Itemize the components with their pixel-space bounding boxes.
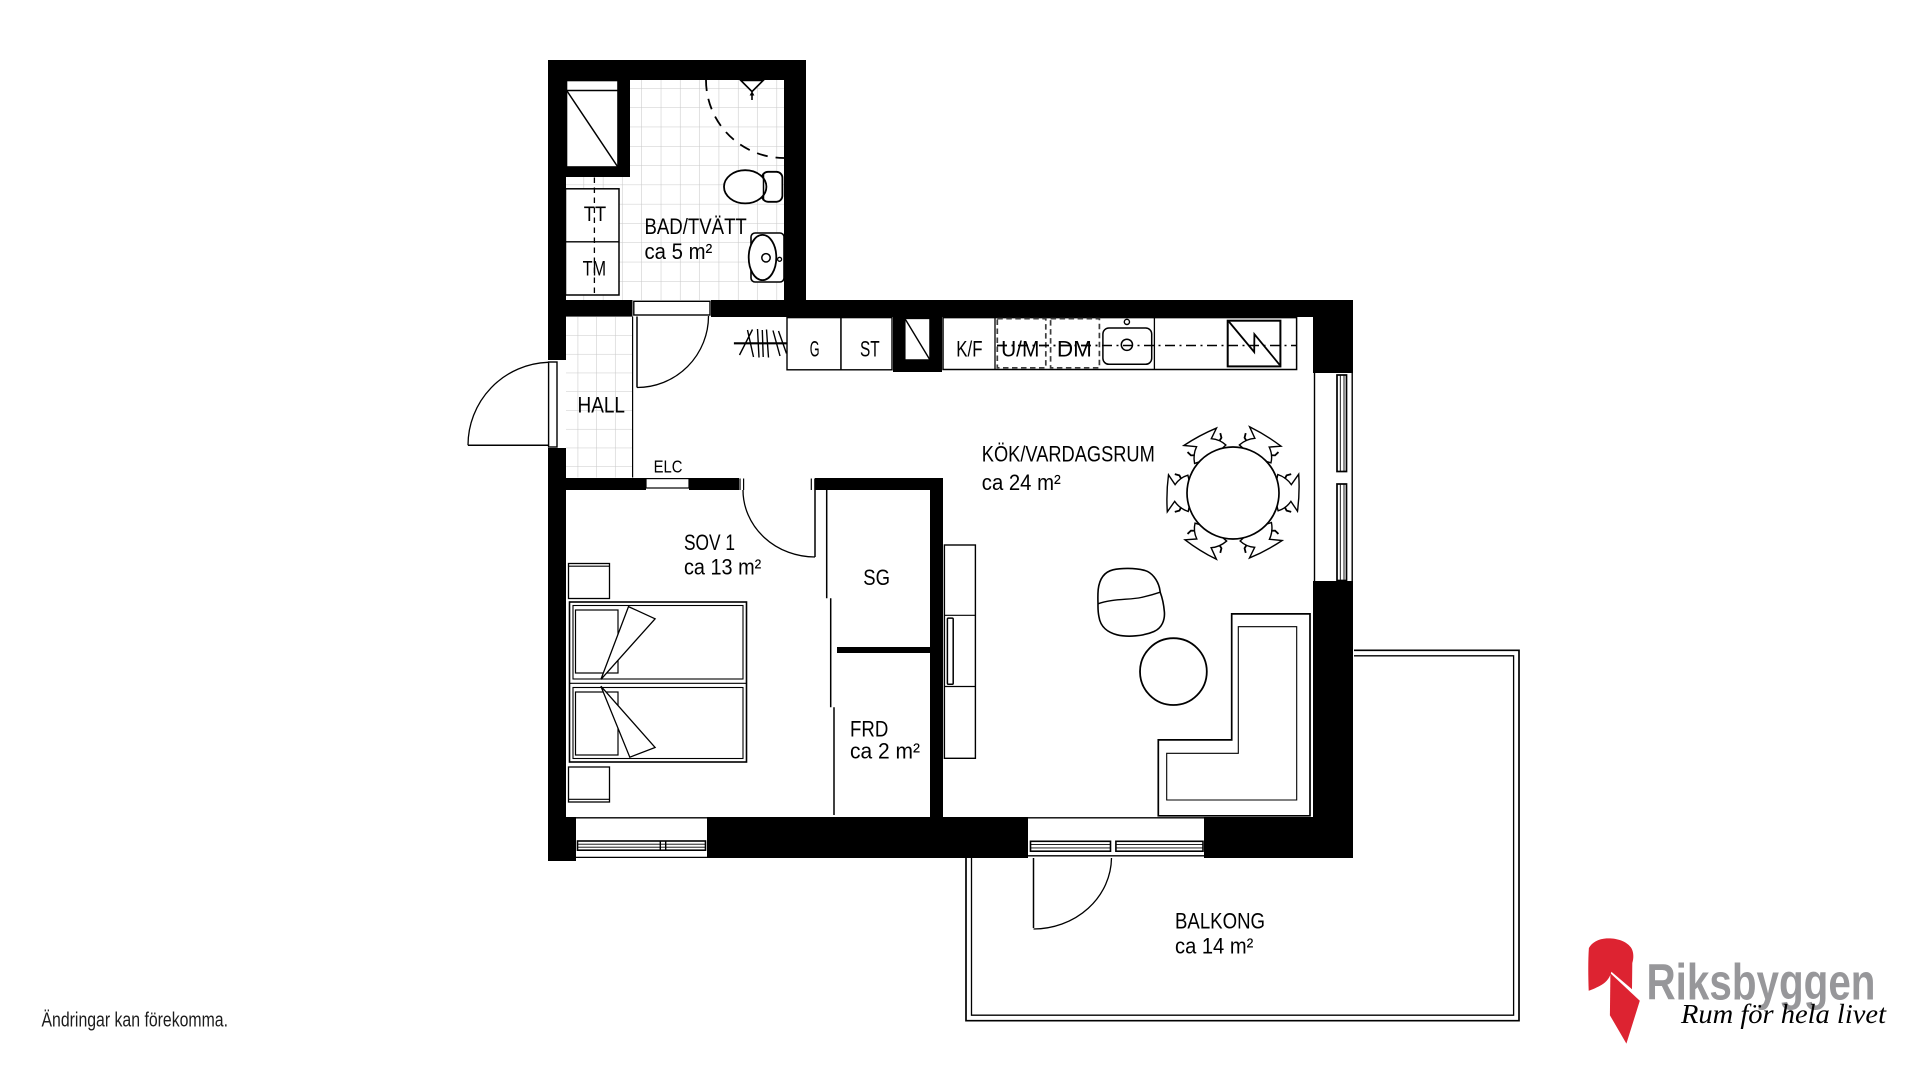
svg-text:G: G: [810, 337, 820, 362]
svg-text:ca 24 m²: ca 24 m²: [982, 470, 1061, 495]
svg-text:BALKONG: BALKONG: [1175, 908, 1265, 933]
svg-text:KÖK/VARDAGSRUM: KÖK/VARDAGSRUM: [982, 442, 1155, 467]
svg-text:Ändringar kan förekomma.: Ändringar kan förekomma.: [42, 1009, 229, 1032]
svg-text:DM: DM: [1057, 337, 1092, 362]
svg-text:K/F: K/F: [956, 337, 982, 362]
svg-text:ST: ST: [860, 337, 880, 362]
svg-text:Rum för hela livet: Rum för hela livet: [1680, 999, 1888, 1029]
svg-text:ELC: ELC: [654, 457, 683, 477]
svg-text:TT: TT: [584, 203, 606, 226]
svg-text:SG: SG: [863, 565, 890, 590]
svg-text:SOV 1: SOV 1: [684, 530, 735, 555]
svg-text:BAD/TVÄTT: BAD/TVÄTT: [645, 214, 747, 239]
svg-text:HALL: HALL: [578, 393, 626, 418]
svg-text:ca 14 m²: ca 14 m²: [1175, 933, 1253, 958]
svg-text:ca 13 m²: ca 13 m²: [684, 555, 761, 580]
svg-text:ca 5 m²: ca 5 m²: [645, 239, 713, 264]
svg-text:ca 2 m²: ca 2 m²: [850, 738, 920, 763]
svg-text:TM: TM: [583, 258, 607, 281]
svg-text:U/M: U/M: [1001, 337, 1039, 362]
